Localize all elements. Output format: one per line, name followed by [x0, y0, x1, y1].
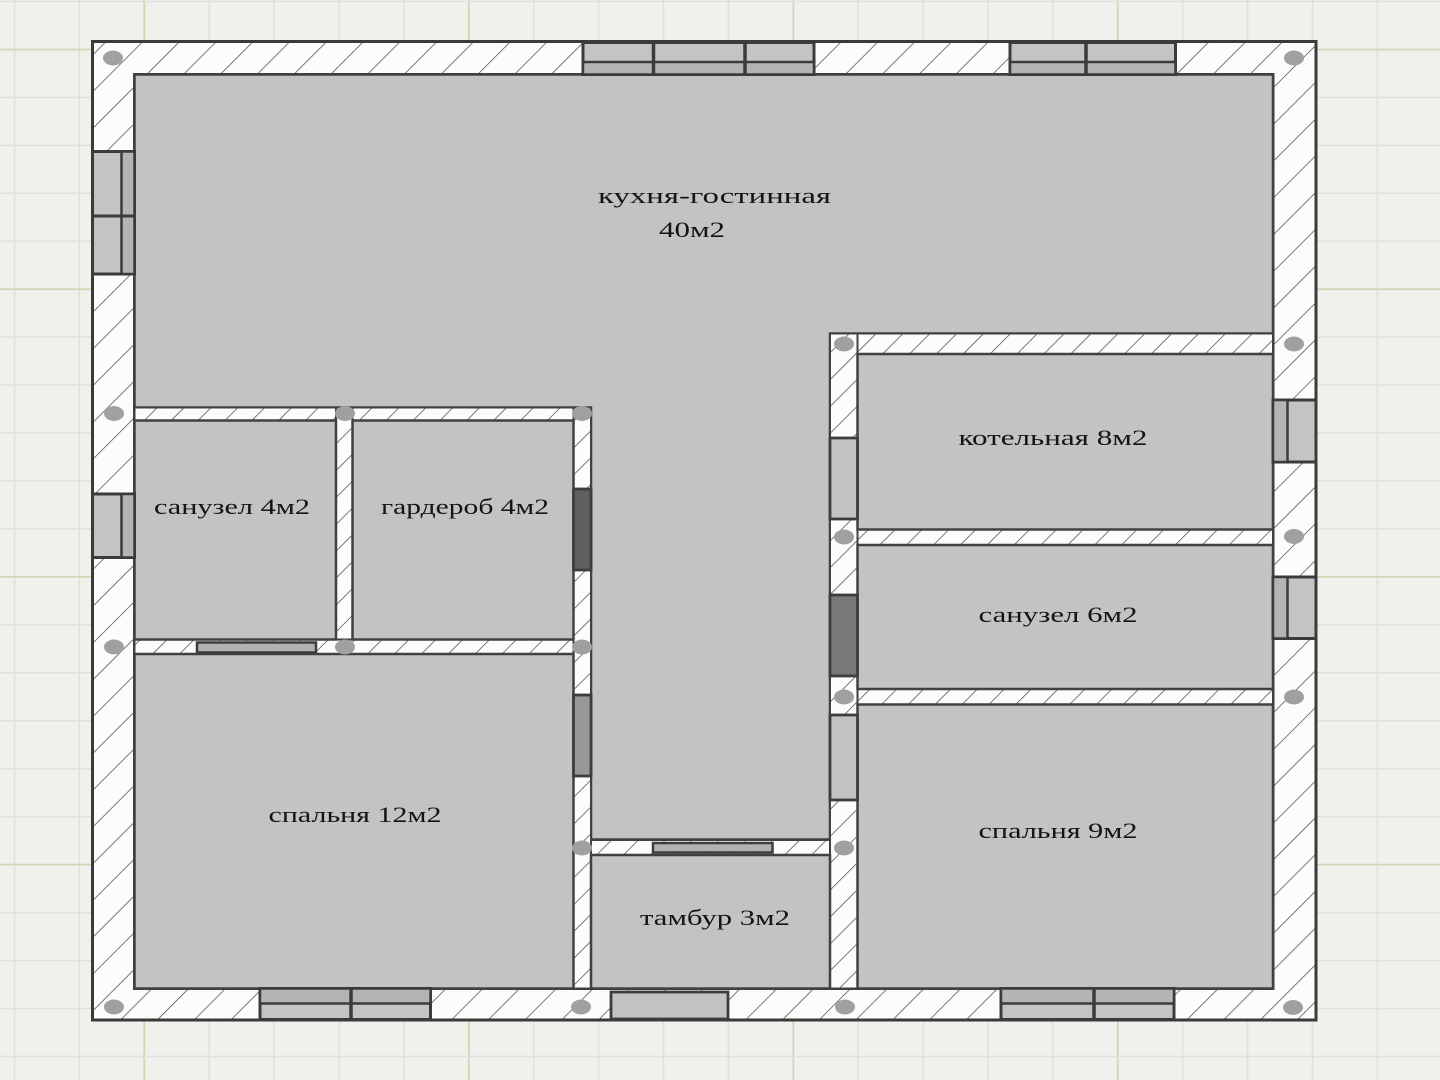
svg-text:спальня 12м2: спальня 12м2 — [269, 802, 442, 827]
svg-text:котельная 8м2: котельная 8м2 — [959, 425, 1148, 450]
svg-text:санузел 6м2: санузел 6м2 — [979, 602, 1138, 627]
svg-text:гардероб 4м2: гардероб 4м2 — [381, 494, 549, 519]
svg-text:санузел 4м2: санузел 4м2 — [154, 494, 310, 519]
svg-text:спальня 9м2: спальня 9м2 — [979, 818, 1138, 843]
svg-text:40м2: 40м2 — [659, 217, 725, 242]
svg-text:тамбур 3м2: тамбур 3м2 — [640, 905, 790, 930]
svg-text:кухня-гостинная: кухня-гостинная — [598, 183, 831, 208]
